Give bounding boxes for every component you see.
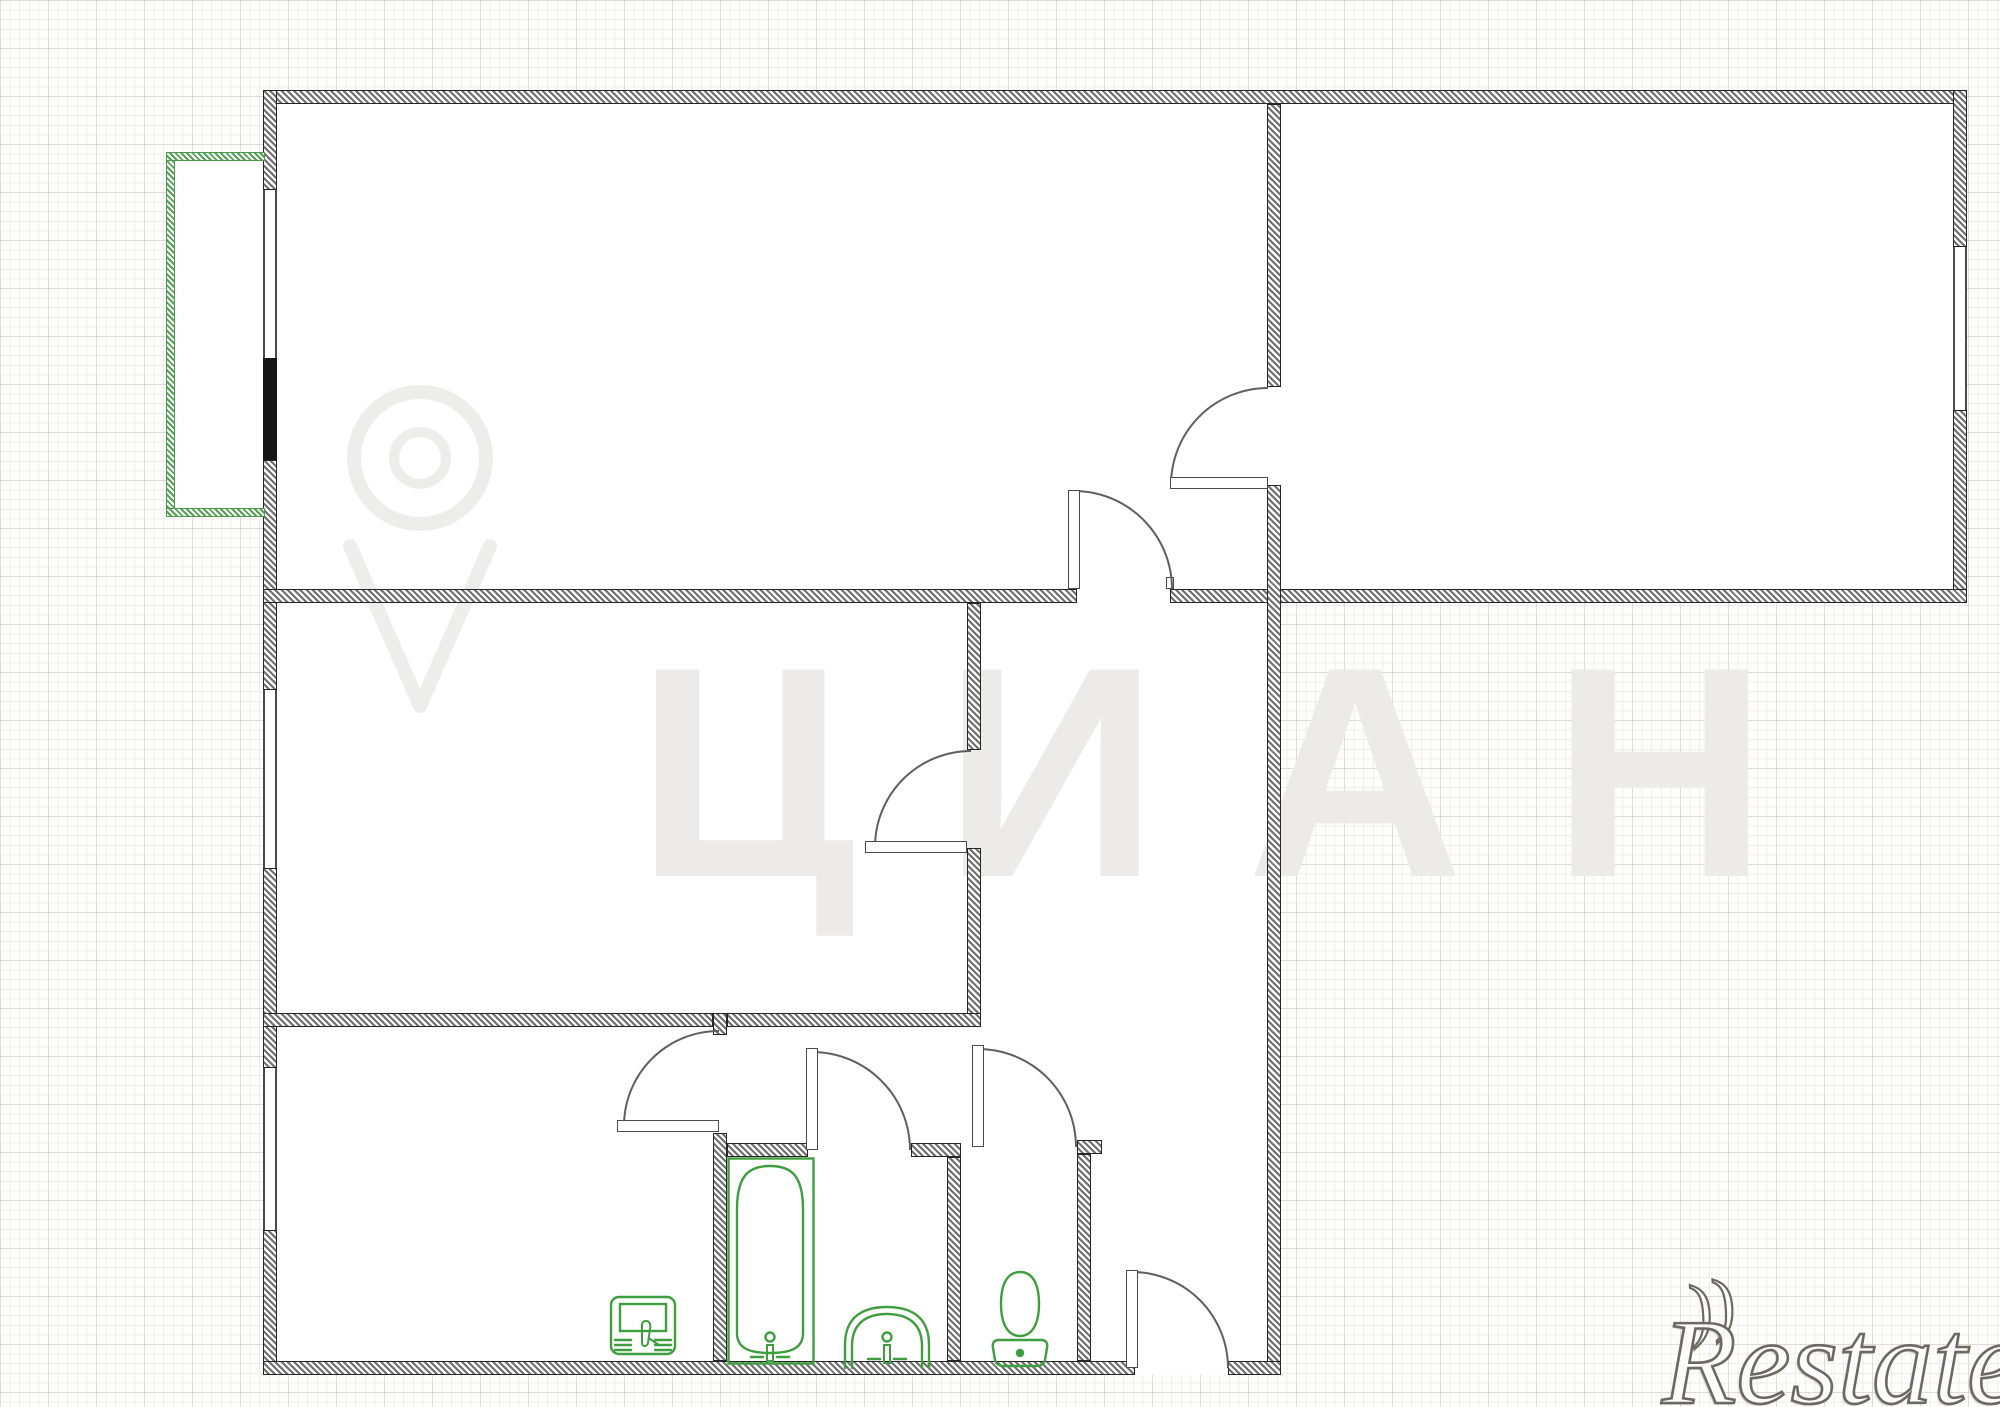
wall-left-4 [263, 1230, 277, 1375]
wall-bottom-east [1228, 1361, 1281, 1375]
wall-bathroom-toilet-divider [947, 1157, 961, 1361]
cian-pin-watermark-icon [328, 368, 518, 720]
cian-letters-watermark: ЦИАН [636, 622, 1856, 922]
bathroom-door-leaf [806, 1048, 818, 1150]
wall-lower-right [1267, 485, 1281, 1375]
wall-left-2 [263, 460, 277, 690]
wall-right-1 [1953, 90, 1967, 247]
wall-top [263, 90, 1967, 104]
wall-middle-room-east-upper [967, 603, 981, 750]
window-balcony [263, 190, 277, 358]
window-bedroom [1953, 247, 1967, 410]
toilet-icon [990, 1268, 1050, 1369]
bedroom-door-leaf [1170, 477, 1268, 489]
washing-machine-icon [609, 1295, 677, 1358]
bathtub-icon [727, 1157, 815, 1365]
balcony-wall-bottom [166, 508, 265, 517]
wall-bathroom-north-west [727, 1143, 808, 1157]
wall-toilet-north-east [1077, 1140, 1102, 1154]
wall-between-upper-rooms [1267, 104, 1281, 387]
wall-toilet-east [1077, 1154, 1091, 1361]
living-room-door-leaf [1068, 490, 1080, 589]
window-middle-room [263, 690, 277, 868]
wall-left-1 [263, 90, 277, 190]
wall-middle-room-south-west [263, 1013, 713, 1027]
wall-right-2 [1953, 410, 1967, 603]
balcony-floor [175, 161, 263, 508]
wall-mid-horizontal-west [263, 589, 1077, 603]
wall-bathroom-north-east [911, 1143, 961, 1157]
balcony-door [263, 358, 277, 460]
lower-room-door-leaf [617, 1120, 719, 1132]
window-lower-room [263, 1068, 277, 1230]
balcony-wall-top [166, 152, 265, 161]
entrance-door-leaf [1126, 1270, 1138, 1368]
wall-bathroom-west [713, 1133, 727, 1361]
wall-mid-horizontal-east [1170, 589, 1967, 603]
toilet-door-leaf [972, 1045, 984, 1147]
wall-middle-room-south-east [727, 1013, 981, 1027]
floor-plan-canvas: ЦИАН [0, 0, 2000, 1407]
wall-middle-room-east-lower [967, 848, 981, 1027]
sink-icon [841, 1303, 933, 1371]
middle-room-door-leaf [865, 841, 967, 853]
restate-watermark: Restate [1662, 1302, 2000, 1407]
wall-left-3 [263, 868, 277, 1068]
balcony-wall-left [166, 152, 175, 517]
